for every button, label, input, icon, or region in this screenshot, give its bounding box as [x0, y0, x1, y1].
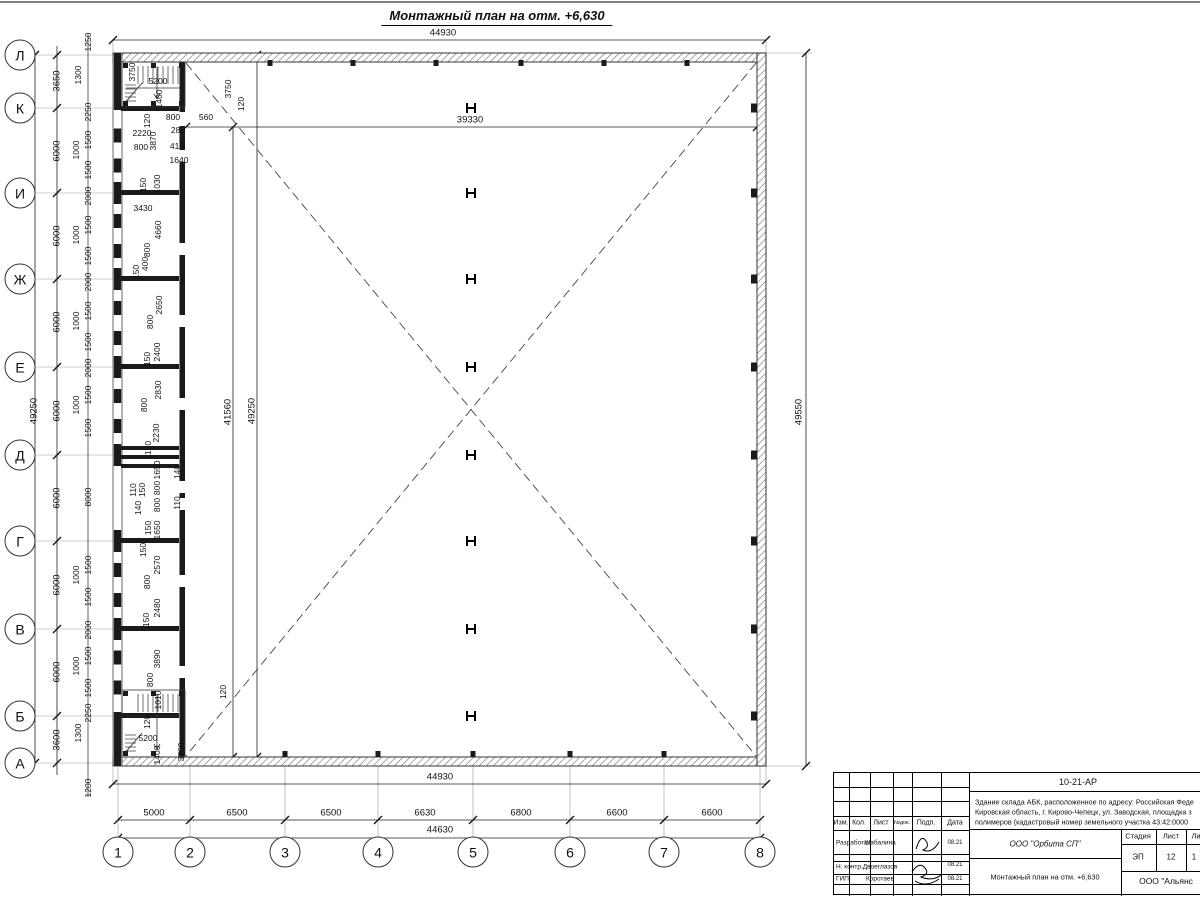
- dim-label: 1640: [170, 156, 189, 165]
- dim-label: 1000: [72, 312, 81, 331]
- dim-label: 3750: [128, 63, 137, 82]
- dim-label: 800: [134, 143, 148, 152]
- dim-label: 1500: [84, 302, 93, 321]
- dim-label: 6600: [701, 808, 722, 818]
- tb-header-izm: Изм.: [834, 820, 849, 827]
- dim-label: 2000: [84, 359, 93, 378]
- dim-label: 1000: [72, 226, 81, 245]
- column-symbol: [467, 711, 475, 721]
- tb-name-2: Двоеглазов: [863, 864, 898, 871]
- dim-label: 800: [166, 113, 180, 122]
- column-symbol: [467, 274, 475, 284]
- dim-label: 2250: [84, 103, 93, 122]
- dim-label: 1000: [72, 566, 81, 585]
- dim-label: 6000: [52, 311, 62, 332]
- dim-label: 3650: [52, 70, 62, 91]
- dim-label: 6000: [52, 487, 62, 508]
- dim-label: 1500: [84, 556, 93, 575]
- dim-label: 3870: [149, 132, 158, 151]
- dim-label: 150: [144, 441, 153, 455]
- dim-label: 150: [143, 352, 152, 366]
- column-symbol: [467, 362, 475, 372]
- dim-label: 560: [199, 113, 213, 122]
- dim-label: 800: [146, 673, 155, 687]
- dim-label: 2480: [153, 599, 162, 618]
- column-symbol: [467, 450, 475, 460]
- dim-inner-width: 39330: [457, 115, 483, 125]
- axis-bubble-col-2: 2: [175, 837, 206, 868]
- axis-bubble-row-А: А: [5, 748, 36, 779]
- dim-label: 2830: [154, 381, 163, 400]
- dim-label: 6000: [52, 661, 62, 682]
- dim-label: 3700: [177, 743, 186, 762]
- floor-plan-drawing: [0, 0, 1200, 900]
- column-symbol: [467, 624, 475, 634]
- dim-label: 1500: [84, 647, 93, 666]
- tb-sheets-label: Ли: [1191, 832, 1200, 841]
- dim-label: 140: [134, 501, 143, 515]
- dim-label: 1000: [72, 141, 81, 160]
- column-symbol: [467, 536, 475, 546]
- dim-label: 150: [139, 543, 148, 557]
- dim-overall-bottom: 44930: [427, 772, 453, 782]
- dim-label: 1650: [153, 461, 162, 480]
- dim-label: 6630: [414, 808, 435, 818]
- axis-bubble-row-Г: Г: [5, 526, 36, 557]
- tb-sheet-label: Лист: [1163, 832, 1179, 841]
- axis-bubble-col-6: 6: [555, 837, 586, 868]
- dim-inner-height: 41560: [223, 399, 233, 425]
- dim-label: 120: [219, 685, 228, 699]
- dim-label: 2000: [84, 273, 93, 292]
- dim-label: 150: [132, 265, 141, 279]
- tb-org: ООО "Орбита СП": [1009, 840, 1080, 849]
- tb-doc-number: 10-21-АР: [1059, 777, 1097, 787]
- axis-bubble-row-Б: Б: [5, 701, 36, 732]
- axis-bubble-row-Д: Д: [5, 440, 36, 471]
- tb-role-2: Н. контр.: [836, 864, 863, 871]
- tb-header-data: Дата: [947, 820, 963, 827]
- dim-label: 800: [153, 481, 162, 495]
- tb-stage-label: Стадия: [1125, 832, 1151, 841]
- dim-col-total: 44630: [427, 825, 453, 835]
- dim-overall-top: 44930: [430, 28, 456, 38]
- column-symbol: [467, 103, 475, 113]
- dim-label: 6600: [606, 808, 627, 818]
- tb-name-1: Шабалина: [864, 840, 895, 847]
- dim-label: 2650: [155, 296, 164, 315]
- column-symbols: [467, 103, 475, 721]
- page-title: Монтажный план на отм. +6,630: [381, 8, 612, 26]
- axis-bubble-col-8: 8: [745, 837, 776, 868]
- tb-date-2: 08.21: [947, 862, 962, 868]
- dim-label: 2400: [153, 343, 162, 362]
- tb-sheet-value: 12: [1167, 853, 1176, 862]
- dim-label: 1030: [153, 175, 162, 194]
- tb-date-3: 08.21: [947, 876, 962, 882]
- dim-label: 110: [173, 496, 182, 510]
- dim-label: 6500: [320, 808, 341, 818]
- dim-left-total: 49250: [29, 398, 39, 424]
- dim-label: 800: [140, 398, 149, 412]
- dim-label: 6500: [226, 808, 247, 818]
- dim-label: 800: [143, 575, 152, 589]
- tb-header-podp: Подп.: [917, 820, 936, 827]
- tb-name-3: Коротаев: [866, 876, 894, 883]
- axis-bubble-col-4: 4: [363, 837, 394, 868]
- axis-bubble-row-И: И: [5, 178, 36, 209]
- axis-bubble-row-Ж: Ж: [5, 264, 36, 295]
- dim-label: 280: [171, 126, 185, 135]
- axis-bubble-col-3: 3: [270, 837, 301, 868]
- column-symbol: [467, 188, 475, 198]
- dim-label: 6800: [510, 808, 531, 818]
- tb-stage-value: ЭП: [1132, 853, 1144, 862]
- dim-label: 1200: [84, 779, 93, 798]
- tb-role-3: ГИП: [836, 876, 849, 883]
- tb-header-kol: Кол.: [852, 820, 866, 827]
- dim-label: 8000: [84, 488, 93, 507]
- tb-header-ndoc: №док.: [894, 820, 910, 826]
- dim-label: 1500: [84, 588, 93, 607]
- dim-label: 800: [146, 315, 155, 329]
- dim-label: 800: [153, 498, 162, 512]
- tb-sheets-value: 1: [1192, 853, 1196, 862]
- dim-label: 5200: [149, 77, 168, 86]
- tb-description-1: Здание склада АБК, расположенное по адре…: [975, 798, 1194, 807]
- dim-label: 1000: [72, 657, 81, 676]
- tb-drawing-title: Монтажный план на отм. +6,630: [990, 873, 1099, 882]
- dim-label: 150: [142, 613, 151, 627]
- axis-bubble-col-7: 7: [649, 837, 680, 868]
- dim-label: 3430: [134, 204, 153, 213]
- dim-label: 800: [143, 243, 152, 257]
- dim-label: 1400: [153, 746, 162, 765]
- dim-label: 2570: [153, 556, 162, 575]
- dim-label: 3890: [153, 650, 162, 669]
- axis-bubble-row-Л: Л: [5, 40, 36, 71]
- axis-bubble-row-Е: Е: [5, 352, 36, 383]
- dim-label: 410: [170, 142, 184, 151]
- dim-label: 5000: [143, 808, 164, 818]
- dim-label: 2250: [84, 704, 93, 723]
- tb-description-3: полимеров (кадастровый номер земельного …: [975, 818, 1188, 827]
- dim-label: 6000: [52, 225, 62, 246]
- dim-label: 150: [139, 178, 148, 192]
- dim-inner-total: 49250: [247, 398, 257, 424]
- title-block: Изм. Кол. Лист №док. Подп. Дата Разработ…: [833, 772, 1200, 895]
- dim-label: 1500: [84, 247, 93, 266]
- dim-label: 2000: [84, 187, 93, 206]
- tb-header-list: Лист: [873, 820, 888, 827]
- axis-bubble-row-К: К: [5, 93, 36, 124]
- dim-label: 6000: [52, 400, 62, 421]
- dim-label: 400: [141, 257, 150, 271]
- dim-label: 150: [138, 483, 147, 497]
- dim-label: 1300: [74, 724, 83, 743]
- dim-label: 140: [173, 465, 182, 479]
- dim-label: 120: [237, 97, 246, 111]
- dim-label: 1500: [84, 333, 93, 352]
- dim-label: 2230: [152, 424, 161, 443]
- dim-label: 1500: [84, 679, 93, 698]
- dim-label: 4660: [154, 221, 163, 240]
- dim-right-total: 49550: [794, 399, 804, 425]
- dim-label: 1250: [84, 33, 93, 52]
- tb-date-1: 08.21: [947, 840, 962, 846]
- axis-bubble-col-1: 1: [103, 837, 134, 868]
- tb-description-2: Кировская область, г. Кирово-Чепецк, ул.…: [975, 808, 1192, 817]
- dim-label: 1000: [72, 396, 81, 415]
- axis-bubble-col-5: 5: [458, 837, 489, 868]
- dim-label: 1650: [153, 521, 162, 540]
- dim-label: 6000: [52, 574, 62, 595]
- dim-label: 1500: [84, 419, 93, 438]
- dim-label: 1300: [74, 66, 83, 85]
- dim-label: 3750: [224, 80, 233, 99]
- dim-label: 6000: [52, 140, 62, 161]
- dim-label: 2000: [84, 621, 93, 640]
- dim-label: 120: [143, 715, 152, 729]
- dim-label: 5200: [139, 734, 158, 743]
- dim-label: 1500: [84, 386, 93, 405]
- dim-label: 120: [143, 114, 152, 128]
- dim-label: 1010: [154, 691, 163, 710]
- tb-org2: ООО "Альянс: [1139, 876, 1193, 886]
- axis-bubble-row-В: В: [5, 614, 36, 645]
- dim-label: 1500: [84, 216, 93, 235]
- dim-label: 1500: [84, 161, 93, 180]
- dim-label: 3600: [52, 729, 62, 750]
- dim-label: 1400: [155, 90, 164, 109]
- dim-label: 1500: [84, 131, 93, 150]
